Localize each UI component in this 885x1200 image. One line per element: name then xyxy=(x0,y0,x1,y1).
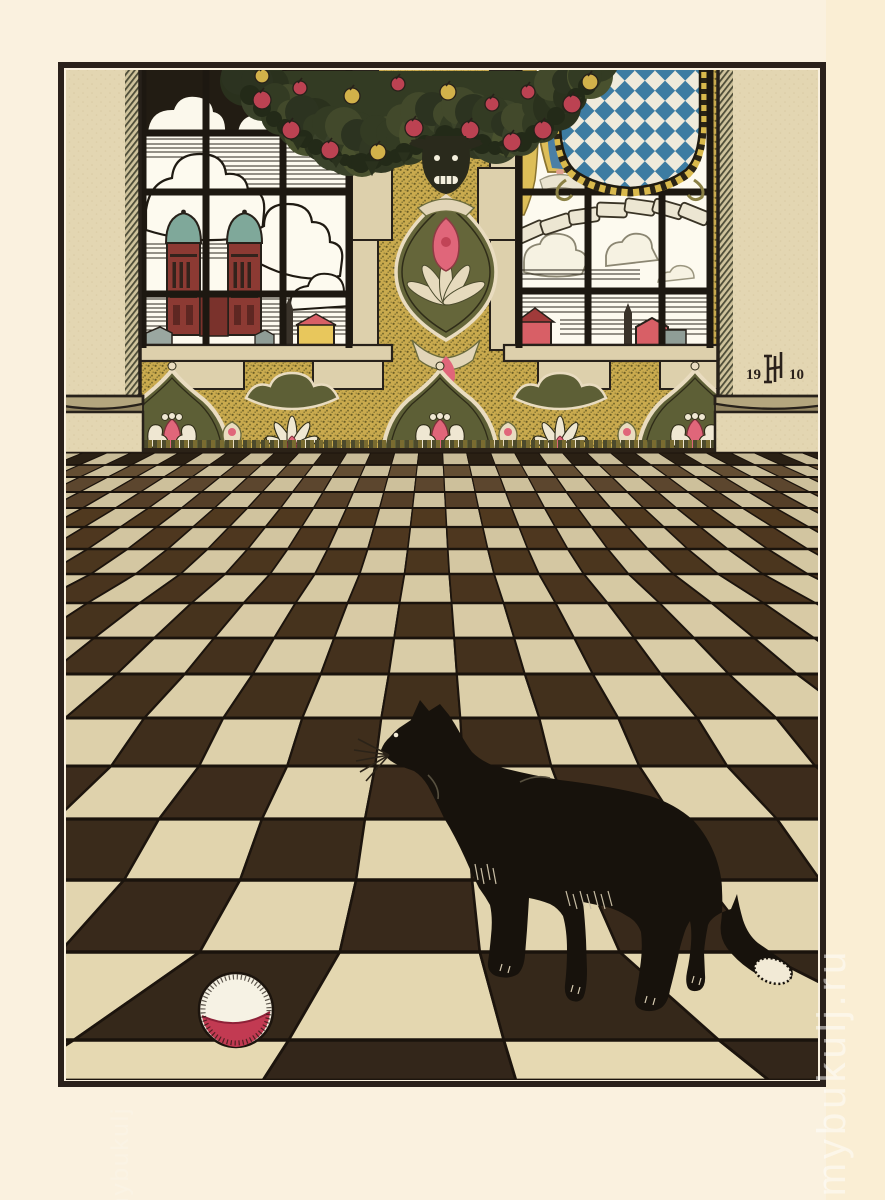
svg-text:10: 10 xyxy=(789,367,804,383)
svg-text:mybukulj.ru: mybukulj.ru xyxy=(810,948,854,1197)
svg-text:19: 19 xyxy=(746,367,761,383)
svg-text:mybukulj: mybukulj xyxy=(107,1107,134,1200)
